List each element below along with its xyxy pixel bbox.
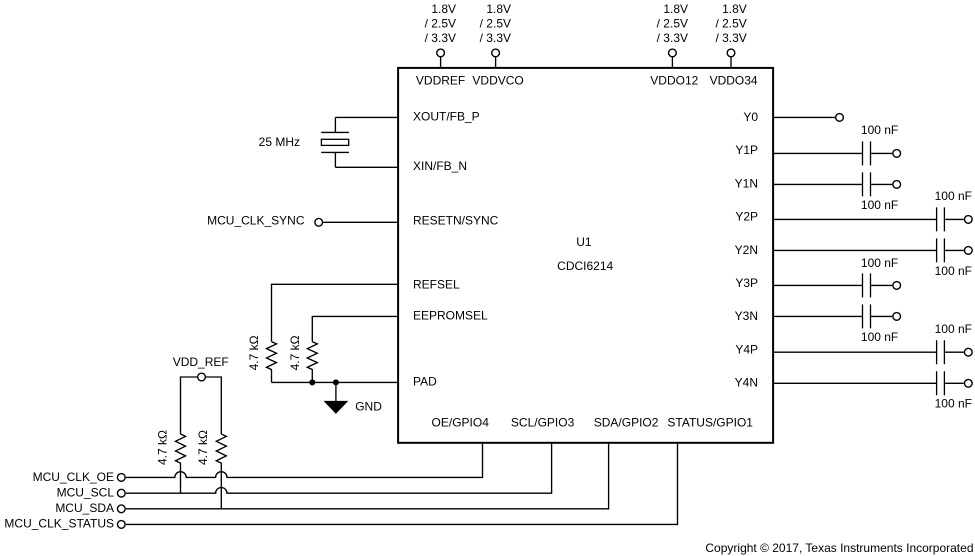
- svg-text:100 nF: 100 nF: [861, 256, 898, 270]
- svg-text:100 nF: 100 nF: [861, 123, 898, 137]
- svg-text:100 nF: 100 nF: [935, 322, 972, 336]
- svg-text:Y2P: Y2P: [735, 210, 758, 224]
- svg-text:Y3P: Y3P: [735, 276, 758, 290]
- svg-text:MCU_CLK_SYNC: MCU_CLK_SYNC: [207, 214, 305, 228]
- svg-text:100 nF: 100 nF: [861, 330, 898, 344]
- svg-text:25 MHz: 25 MHz: [259, 135, 300, 149]
- svg-text:100 nF: 100 nF: [935, 264, 972, 278]
- svg-text:/ 3.3V: / 3.3V: [657, 31, 688, 45]
- svg-text:/ 3.3V: / 3.3V: [425, 31, 456, 45]
- svg-text:Y4N: Y4N: [735, 376, 758, 390]
- svg-text:100 nF: 100 nF: [935, 396, 972, 410]
- svg-text:1.8V: 1.8V: [431, 2, 456, 16]
- svg-text:/ 2.5V: / 2.5V: [715, 16, 746, 30]
- svg-text:VDDREF: VDDREF: [416, 73, 465, 87]
- svg-text:4.7 kΩ: 4.7 kΩ: [247, 335, 261, 370]
- svg-text:Copyright © 2017, Texas Instru: Copyright © 2017, Texas Instruments Inco…: [705, 541, 973, 555]
- svg-text:VDDO34: VDDO34: [710, 73, 758, 87]
- svg-text:/ 3.3V: / 3.3V: [715, 31, 746, 45]
- svg-text:RESETN/SYNC: RESETN/SYNC: [413, 214, 499, 228]
- svg-text:VDDVCO: VDDVCO: [472, 73, 523, 87]
- svg-text:/ 2.5V: / 2.5V: [425, 16, 456, 30]
- svg-text:CDCI6214: CDCI6214: [557, 259, 613, 273]
- svg-text:Y2N: Y2N: [735, 243, 758, 257]
- svg-text:1.8V: 1.8V: [722, 2, 747, 16]
- svg-text:100 nF: 100 nF: [861, 198, 898, 212]
- svg-text:MCU_SCL: MCU_SCL: [57, 485, 115, 499]
- svg-text:Y0: Y0: [743, 110, 758, 124]
- svg-text:XOUT/FB_P: XOUT/FB_P: [413, 109, 480, 123]
- svg-text:GND: GND: [355, 400, 382, 414]
- svg-text:VDD_REF: VDD_REF: [173, 355, 229, 369]
- svg-text:4.7 kΩ: 4.7 kΩ: [288, 335, 302, 370]
- svg-text:SDA/GPIO2: SDA/GPIO2: [594, 415, 659, 429]
- svg-text:STATUS/GPIO1: STATUS/GPIO1: [667, 415, 753, 429]
- svg-text:1.8V: 1.8V: [663, 2, 688, 16]
- svg-text:/ 2.5V: / 2.5V: [480, 16, 511, 30]
- svg-text:/ 2.5V: / 2.5V: [657, 16, 688, 30]
- svg-text:Y1N: Y1N: [735, 176, 758, 190]
- svg-text:4.7 kΩ: 4.7 kΩ: [196, 430, 210, 465]
- svg-text:SCL/GPIO3: SCL/GPIO3: [511, 415, 575, 429]
- svg-text:Y3N: Y3N: [735, 309, 758, 323]
- svg-text:MCU_SDA: MCU_SDA: [55, 501, 114, 515]
- svg-text:MCU_CLK_STATUS: MCU_CLK_STATUS: [4, 516, 114, 530]
- svg-text:XIN/FB_N: XIN/FB_N: [413, 159, 467, 173]
- svg-text:1.8V: 1.8V: [486, 2, 511, 16]
- svg-text:Y4P: Y4P: [735, 342, 758, 356]
- svg-text:PAD: PAD: [413, 375, 437, 389]
- svg-text:4.7 kΩ: 4.7 kΩ: [156, 430, 170, 465]
- svg-text:VDDO12: VDDO12: [650, 73, 698, 87]
- svg-text:100 nF: 100 nF: [935, 189, 972, 203]
- svg-text:OE/GPIO4: OE/GPIO4: [432, 415, 490, 429]
- svg-text:REFSEL: REFSEL: [413, 277, 460, 291]
- svg-text:U1: U1: [576, 235, 592, 249]
- svg-text:Y1P: Y1P: [735, 143, 758, 157]
- svg-text:/ 3.3V: / 3.3V: [480, 31, 511, 45]
- svg-text:MCU_CLK_OE: MCU_CLK_OE: [33, 470, 114, 484]
- svg-text:EEPROMSEL: EEPROMSEL: [413, 309, 488, 323]
